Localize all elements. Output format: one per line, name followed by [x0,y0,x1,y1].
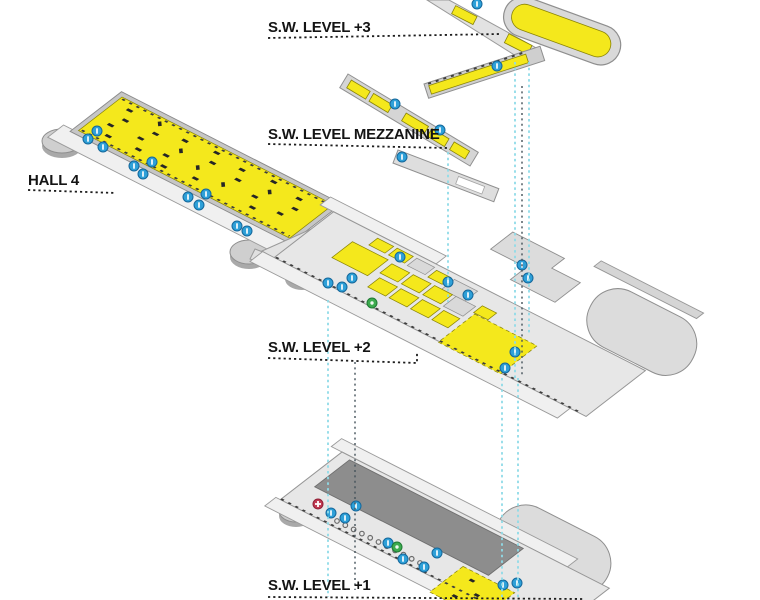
wayfinding-marker-icon [138,169,148,179]
label-hall4: HALL 4 [28,172,80,189]
wayfinding-marker-icon [419,562,429,572]
wayfinding-marker-icon [500,363,510,373]
wayfinding-marker-icon [92,126,102,136]
wayfinding-marker-icon [232,221,242,231]
exploded-axonometric-diagram: S.W. LEVEL +3 S.W. LEVEL MEZZANINE HALL … [0,0,760,600]
wayfinding-marker-icon [397,152,407,162]
label-mezzanine: S.W. LEVEL MEZZANINE [268,126,440,143]
wayfinding-marker-icon [523,273,533,283]
wayfinding-marker-icon [351,501,361,511]
wayfinding-marker-icon [432,548,442,558]
wayfinding-marker-icon [242,226,252,236]
wayfinding-marker-icon [347,273,357,283]
wayfinding-marker-icon [183,192,193,202]
wayfinding-marker-icon [390,99,400,109]
wayfinding-marker-icon [83,134,93,144]
wayfinding-marker-icon [323,278,333,288]
wayfinding-marker-icon [340,513,350,523]
wayfinding-marker-icon [383,538,393,548]
wayfinding-marker-icon [398,554,408,564]
wayfinding-marker-icon [463,290,473,300]
wayfinding-marker-icon [98,142,108,152]
accessible-route-icon [392,542,402,552]
wayfinding-marker-icon [498,580,508,590]
label-level2: S.W. LEVEL +2 [268,339,371,356]
wayfinding-marker-icon [492,61,502,71]
wayfinding-marker-icon [194,200,204,210]
wayfinding-marker-icon [395,252,405,262]
wayfinding-marker-icon [201,189,211,199]
accessible-route-icon [367,298,377,308]
wayfinding-marker-icon [512,578,522,588]
wayfinding-marker-icon [337,282,347,292]
wayfinding-marker-icon [472,0,482,9]
diagram-canvas: S.W. LEVEL +3 S.W. LEVEL MEZZANINE HALL … [0,0,760,600]
label-level1: S.W. LEVEL +1 [268,577,371,594]
label-level3: S.W. LEVEL +3 [268,19,371,36]
wayfinding-marker-icon [129,161,139,171]
wayfinding-marker-icon [147,157,157,167]
first-aid-icon [313,499,323,509]
